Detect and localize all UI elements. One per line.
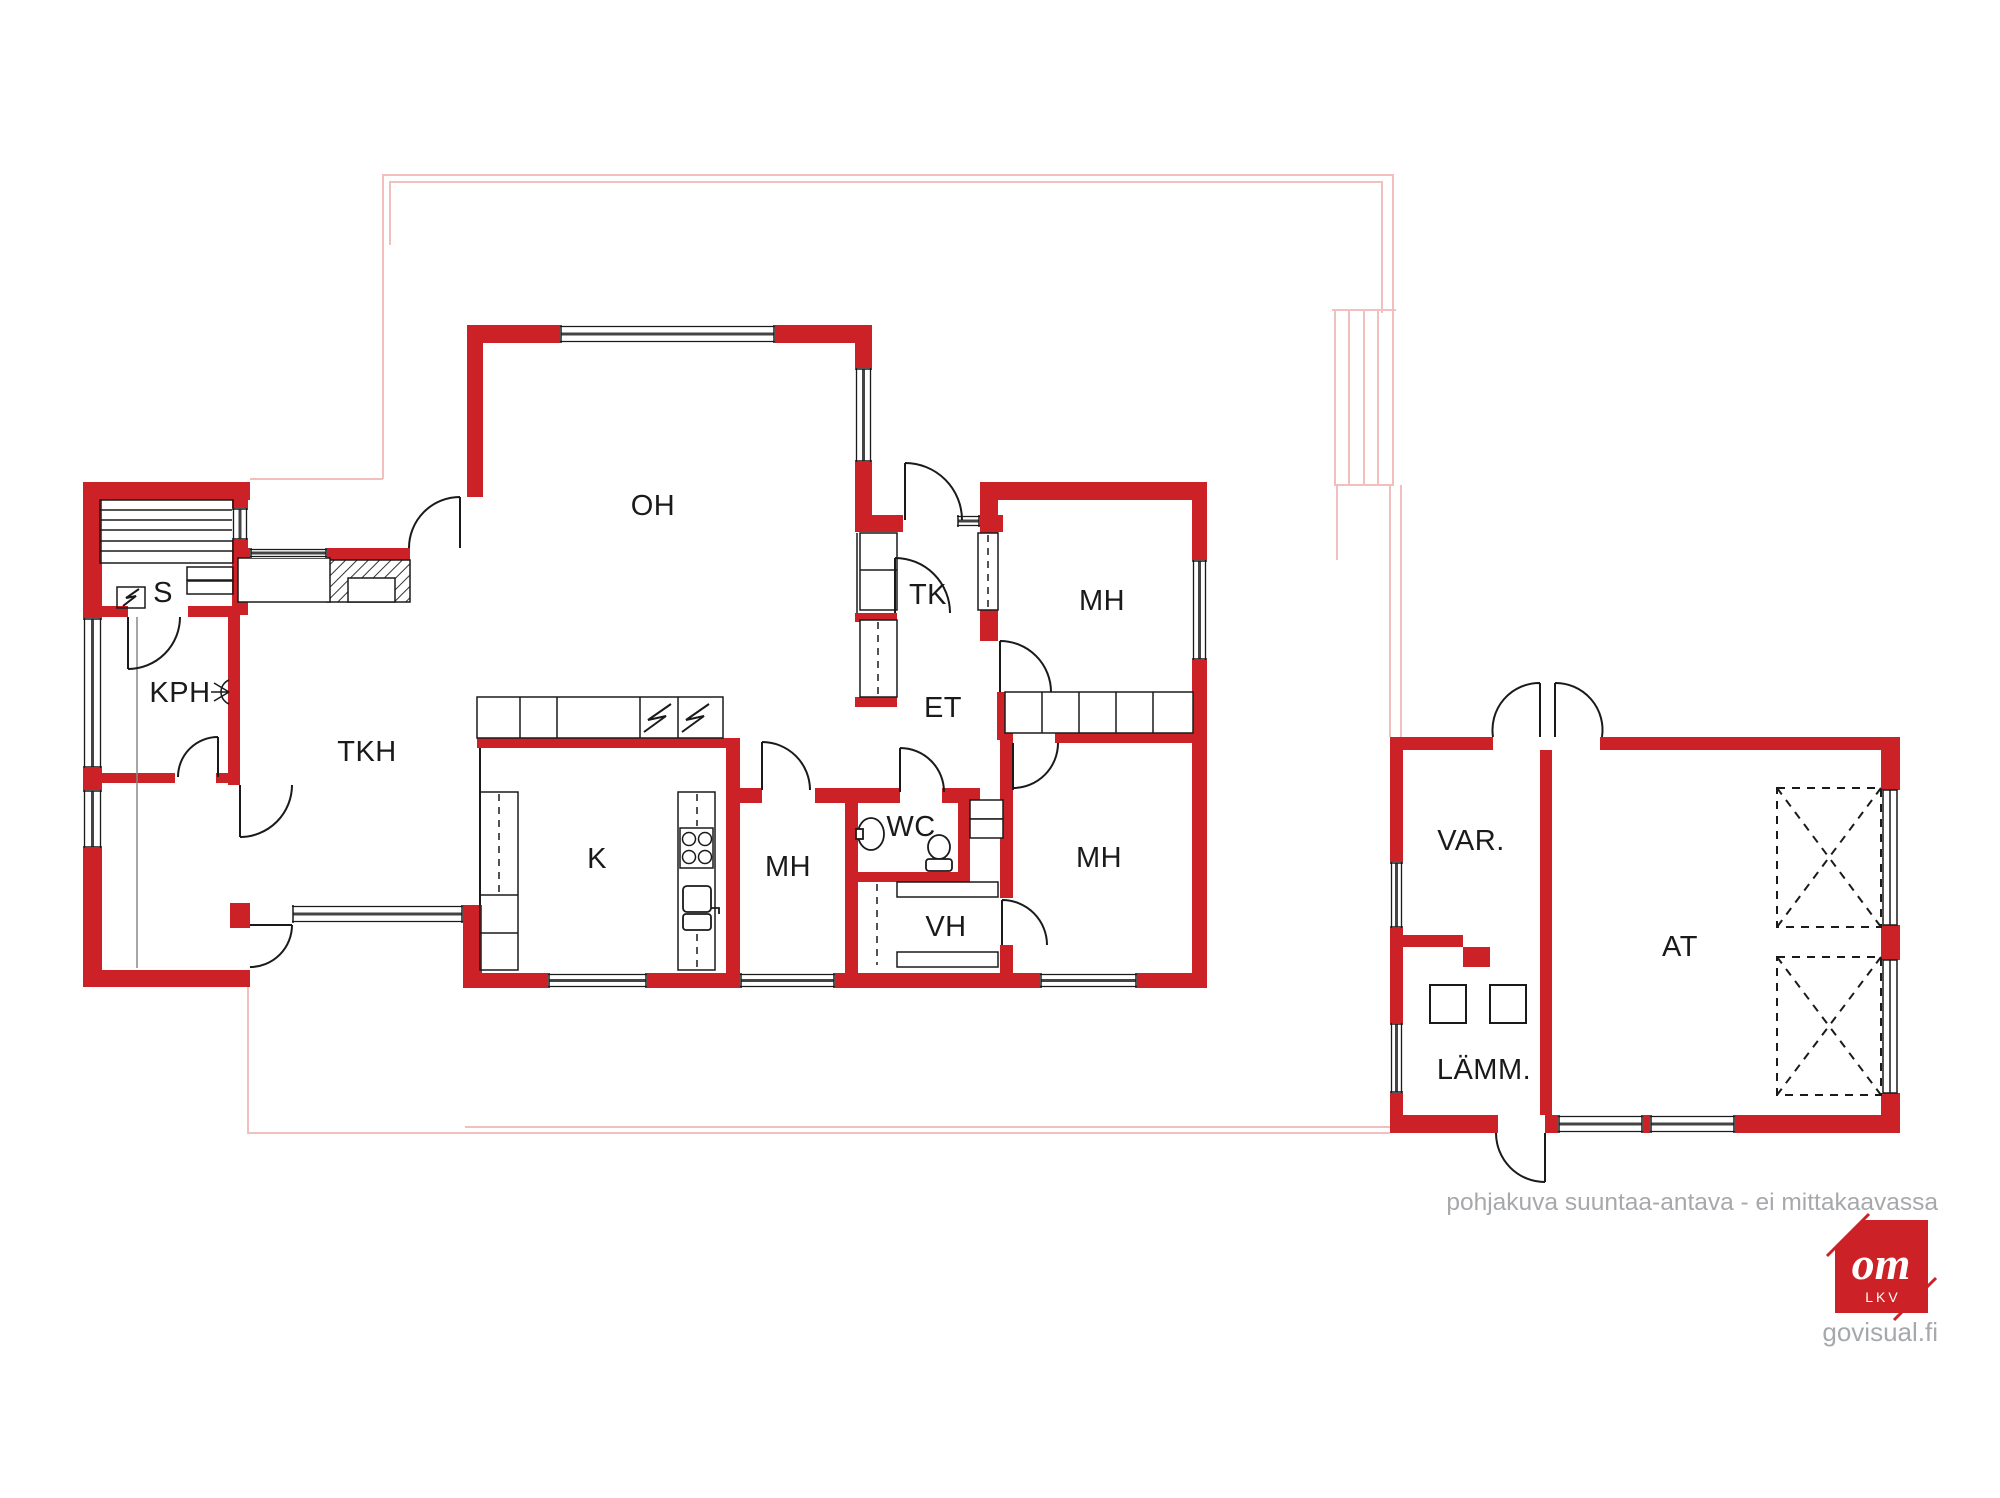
window (232, 508, 248, 540)
window (548, 973, 647, 988)
door-mh-ne (1000, 641, 1051, 692)
terrace-outline (248, 175, 1401, 1133)
room-label-k: K (587, 843, 607, 875)
window (1192, 560, 1207, 660)
heater-units (1430, 985, 1526, 1023)
kitchen-stove (680, 828, 713, 868)
door-lamm-exterior (1496, 1133, 1545, 1182)
room-label-oh: OH (631, 490, 676, 522)
window (1390, 862, 1403, 928)
room-label-kph: KPH (149, 677, 210, 709)
floor-plan-page: OH TK MH ET S KPH TKH K MH WC VH MH VAR.… (0, 0, 2000, 1498)
room-label-vh: VH (925, 911, 966, 943)
logo-subtitle: LKV (1865, 1289, 1900, 1305)
room-label-mh-se: MH (1076, 842, 1122, 874)
window (740, 973, 835, 988)
door-garage-double-right (1555, 683, 1603, 737)
room-label-var: VAR. (1437, 825, 1505, 857)
window (83, 790, 102, 848)
window (1558, 1115, 1643, 1133)
sauna-stove-icon (117, 587, 145, 608)
room-label-s: S (153, 577, 173, 609)
shower-icon (211, 680, 229, 704)
logo-monogram: om (1852, 1238, 1911, 1289)
kitchen-counter (477, 697, 723, 738)
kitchen-cabinets (480, 792, 715, 970)
website-text: govisual.fi (1822, 1317, 1938, 1347)
room-label-tk: TK (909, 579, 947, 611)
room-label-at: AT (1662, 931, 1698, 963)
kitchen-sink (683, 886, 719, 930)
terrace-stairs (1332, 310, 1396, 485)
hearth-bench (238, 558, 330, 602)
garage-door-markers (1777, 788, 1881, 1095)
window (292, 905, 463, 923)
window (560, 325, 775, 343)
door-garage-double-left (1492, 683, 1540, 737)
floor-plan-canvas: OH TK MH ET S KPH TKH K MH WC VH MH VAR.… (0, 0, 2000, 1498)
window (855, 368, 872, 462)
door-hall-tkh (240, 785, 292, 837)
disclaimer-text: pohjakuva suuntaa-antava - ei mittakaava… (1446, 1189, 1938, 1216)
door-tkh-oh (409, 497, 460, 548)
door-terrace (250, 925, 292, 967)
door-mh-mid (762, 742, 810, 790)
door-sauna (128, 617, 180, 669)
window (1650, 1115, 1735, 1133)
windows (83, 325, 1735, 1133)
wardrobe-row (1005, 692, 1193, 733)
window (1390, 1023, 1403, 1093)
room-label-lamm: LÄMM. (1437, 1054, 1531, 1086)
room-label-wc: WC (886, 811, 935, 843)
room-label-et: ET (924, 692, 962, 724)
room-label-mh-mid: MH (765, 851, 811, 883)
window (83, 618, 102, 768)
fireplace (238, 558, 410, 602)
room-label-tkh: TKH (337, 736, 397, 768)
window (957, 515, 980, 527)
window (250, 548, 327, 558)
door-mh-se (1013, 743, 1058, 790)
door-entrance (905, 463, 962, 520)
room-label-mh-ne: MH (1079, 585, 1125, 617)
walls (83, 325, 1900, 1133)
door-vh (1002, 900, 1047, 945)
brand-logo: om LKV (1827, 1214, 1936, 1320)
washbasin-icon (856, 818, 884, 850)
door-wc (900, 748, 944, 792)
window (1040, 973, 1137, 988)
door-kph (178, 737, 218, 777)
